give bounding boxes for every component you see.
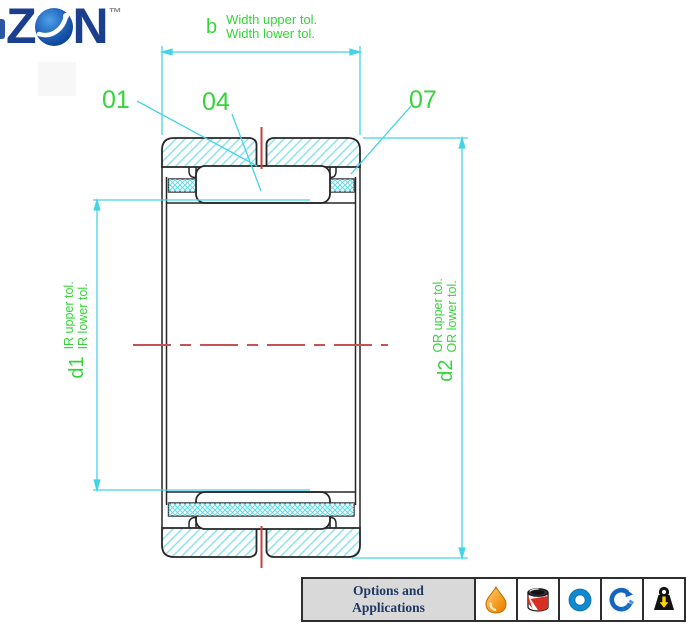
oil-drop-cell xyxy=(474,577,518,622)
width-upper-tol: Width upper tol. xyxy=(226,12,317,27)
arrow-d1-top xyxy=(94,200,100,210)
load-weight-cell xyxy=(642,577,686,622)
grease-tin-cell xyxy=(516,577,560,622)
flange-step-top-left xyxy=(189,167,196,178)
load-weight-icon xyxy=(650,586,678,614)
inner-dia-symbol: d1 xyxy=(66,356,89,378)
arrow-b-left xyxy=(162,49,172,55)
or-upper-tol: OR upper tol. xyxy=(431,278,445,352)
flange-step-bottom-left xyxy=(189,518,196,529)
ring-side-faces xyxy=(162,167,360,528)
grease-tin-icon xyxy=(524,586,552,614)
arrow-b-right xyxy=(350,49,360,55)
arrow-d1-bottom xyxy=(94,480,100,490)
cage-band-bottom xyxy=(169,503,355,516)
width-dimension-label: b Width upper tol. Width lower tol. xyxy=(206,13,317,42)
or-lower-tol: OR lower tol. xyxy=(445,280,459,352)
rotation-icon xyxy=(608,586,636,614)
rotation-cell xyxy=(600,577,644,622)
outer-diameter-label: d2 OR upper tol. OR lower tol. xyxy=(430,265,462,395)
bearing-ring-icon xyxy=(566,586,594,614)
width-symbol: b xyxy=(206,16,217,39)
inner-diameter-label: d1 IR upper tol. IR lower tol. xyxy=(61,265,93,395)
part-ref-04: 04 xyxy=(202,88,230,117)
arrow-d2-top xyxy=(459,138,465,148)
needle-roller-top xyxy=(196,166,330,203)
dimension-lines xyxy=(93,46,468,558)
options-applications-bar: Options and Applications xyxy=(301,577,686,622)
arrow-d2-bottom xyxy=(459,548,465,558)
bearing-ring-cell xyxy=(558,577,602,622)
oil-drop-icon xyxy=(482,585,510,615)
options-label: Options and Applications xyxy=(301,577,476,622)
options-label-line1: Options and xyxy=(353,583,424,600)
outer-dia-symbol: d2 xyxy=(435,360,458,382)
part-ref-01: 01 xyxy=(102,86,130,115)
options-label-line2: Applications xyxy=(352,600,425,617)
ir-lower-tol: IR lower tol. xyxy=(76,283,90,349)
width-lower-tol: Width lower tol. xyxy=(226,26,315,41)
bearing-catalog-page: Z N ™ xyxy=(0,0,686,624)
part-ref-07: 07 xyxy=(409,86,437,115)
ir-upper-tol: IR upper tol. xyxy=(62,281,76,349)
